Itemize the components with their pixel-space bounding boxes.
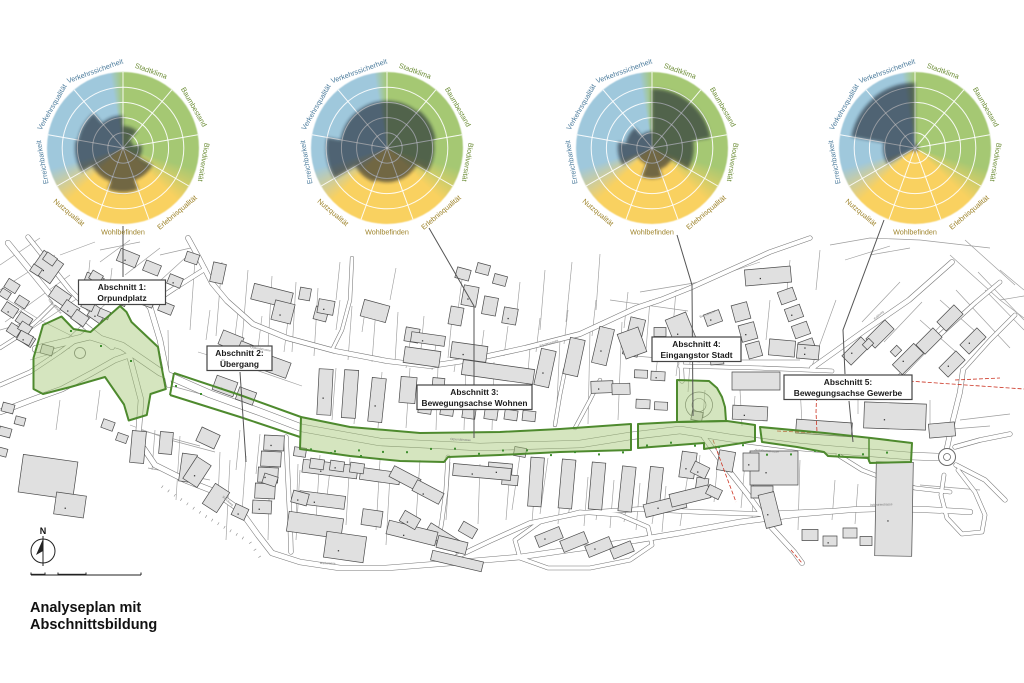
svg-text:Abschnitt 5:: Abschnitt 5: (824, 377, 872, 387)
svg-text:Stadtklima: Stadtklima (398, 61, 433, 81)
svg-text:Abschnitt 4:: Abschnitt 4: (672, 339, 720, 349)
svg-text:Eingangstor Stadt: Eingangstor Stadt (660, 350, 732, 360)
svg-text:N: N (40, 526, 47, 536)
svg-text:Biodiversität: Biodiversität (196, 142, 212, 182)
svg-text:Nutzqualität: Nutzqualität (316, 197, 351, 228)
svg-text:Erlebnisqualität: Erlebnisqualität (155, 193, 198, 231)
svg-text:Erlebnisqualität: Erlebnisqualität (419, 193, 462, 231)
svg-text:Erlebnisqualität: Erlebnisqualität (684, 193, 727, 231)
svg-text:Stadtklima: Stadtklima (134, 61, 169, 81)
svg-text:Verkehrssicherheit: Verkehrssicherheit (595, 57, 654, 86)
svg-text:Erreichbarkeit: Erreichbarkeit (826, 140, 843, 185)
svg-text:Biodiversität: Biodiversität (988, 142, 1004, 182)
svg-text:Verkehrsqualität: Verkehrsqualität (299, 82, 333, 131)
svg-text:Verkehrssicherheit: Verkehrssicherheit (858, 57, 917, 86)
svg-text:Biodiversität: Biodiversität (725, 142, 741, 182)
svg-text:Abschnitt 1:: Abschnitt 1: (98, 282, 146, 292)
svg-text:Wohlbefinden: Wohlbefinden (893, 228, 937, 237)
svg-text:Wohlbefinden: Wohlbefinden (101, 228, 145, 237)
svg-text:Bielstrasse: Bielstrasse (320, 561, 336, 566)
svg-text:Nutzqualität: Nutzqualität (844, 197, 879, 228)
svg-text:Bewegungsachse Wohnen: Bewegungsachse Wohnen (422, 398, 528, 408)
svg-text:Verkehrsqualität: Verkehrsqualität (564, 82, 598, 131)
svg-text:Analyseplan mit: Analyseplan mit (30, 600, 141, 616)
svg-text:Erreichbarkeit: Erreichbarkeit (563, 140, 580, 185)
svg-text:Verkehrsqualität: Verkehrsqualität (35, 82, 69, 131)
svg-text:Abschnittsbildung: Abschnittsbildung (30, 617, 157, 633)
svg-text:Wohlbefinden: Wohlbefinden (630, 228, 674, 237)
svg-text:Baumbestand: Baumbestand (708, 86, 738, 129)
svg-text:Bewegungsachse Gewerbe: Bewegungsachse Gewerbe (794, 388, 903, 398)
svg-text:Verkehrssicherheit: Verkehrssicherheit (66, 57, 125, 86)
svg-text:Wohlbefinden: Wohlbefinden (365, 228, 409, 237)
svg-text:Orpundplatz: Orpundplatz (97, 293, 146, 303)
svg-text:Biodiversität: Biodiversität (460, 142, 476, 182)
svg-text:Erreichbarkeit: Erreichbarkeit (298, 140, 315, 185)
svg-text:Baumbestand: Baumbestand (179, 86, 209, 129)
svg-text:Erlebnisqualität: Erlebnisqualität (947, 193, 990, 231)
svg-text:Industriestrasse: Industriestrasse (870, 502, 893, 507)
svg-text:Stadtklima: Stadtklima (926, 61, 961, 81)
svg-text:Verkehrssicherheit: Verkehrssicherheit (330, 57, 389, 86)
svg-text:Baumbestand: Baumbestand (443, 86, 473, 129)
svg-text:Abschnitt 3:: Abschnitt 3: (450, 387, 498, 397)
svg-text:Nutzqualität: Nutzqualität (581, 197, 616, 228)
svg-text:Übergang: Übergang (220, 359, 259, 369)
svg-text:Nutzqualität: Nutzqualität (52, 197, 87, 228)
svg-text:Stadtklima: Stadtklima (663, 61, 698, 81)
svg-text:Erreichbarkeit: Erreichbarkeit (34, 140, 51, 185)
svg-text:Baumbestand: Baumbestand (971, 86, 1001, 129)
